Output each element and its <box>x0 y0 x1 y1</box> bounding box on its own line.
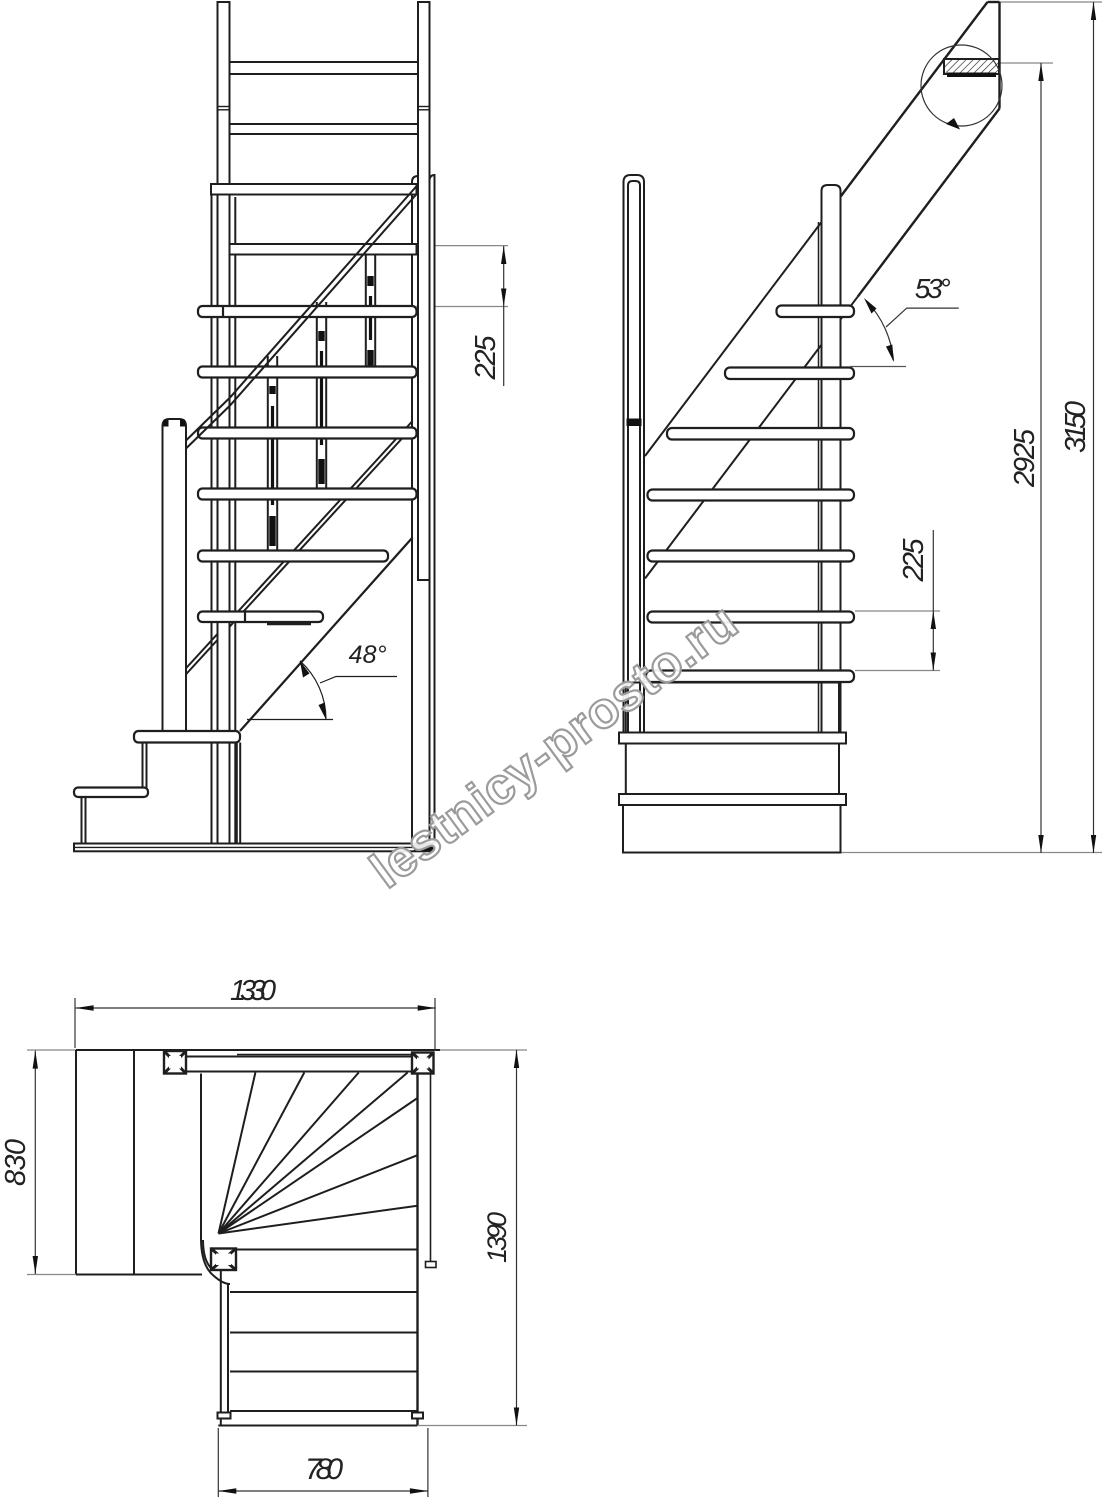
svg-text:48°: 48° <box>349 641 387 669</box>
svg-text:1330: 1330 <box>230 975 276 1007</box>
svg-text:3150: 3150 <box>1060 401 1092 453</box>
svg-text:780: 780 <box>305 1453 343 1486</box>
svg-text:53°: 53° <box>915 273 951 304</box>
svg-text:830: 830 <box>0 1139 32 1186</box>
svg-text:225: 225 <box>898 538 930 583</box>
svg-text:2925: 2925 <box>1009 428 1041 488</box>
svg-text:225: 225 <box>470 335 502 381</box>
svg-text:1390: 1390 <box>482 1212 512 1263</box>
